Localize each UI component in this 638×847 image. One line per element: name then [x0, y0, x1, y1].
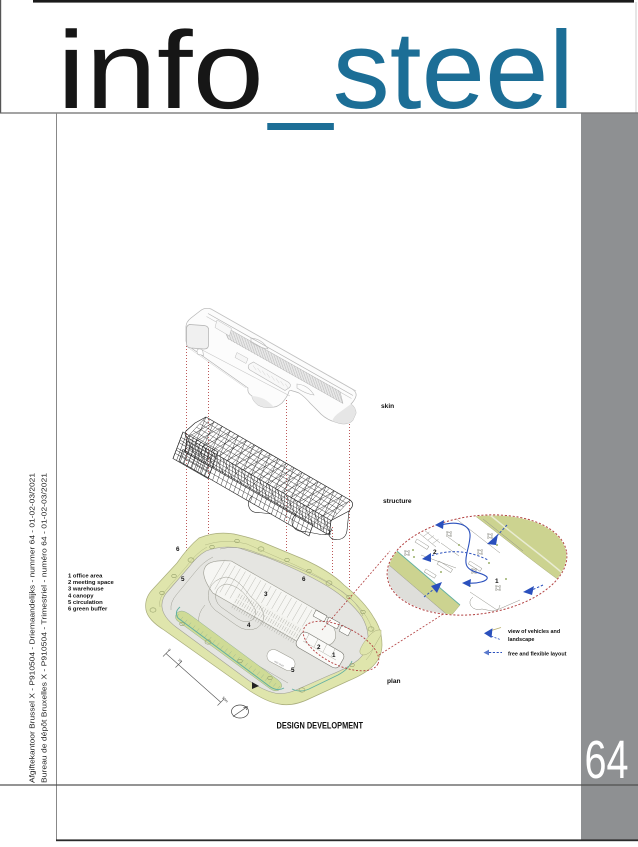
svg-text:1 office area: 1 office area — [68, 574, 103, 580]
svg-text:2: 2 — [317, 644, 321, 651]
svg-text:plan: plan — [387, 678, 401, 685]
svg-text:6 green buffer: 6 green buffer — [68, 607, 108, 613]
svg-text:2 meeting space: 2 meeting space — [68, 580, 115, 586]
svg-text:6: 6 — [302, 576, 306, 583]
svg-text:5 circulation: 5 circulation — [68, 600, 103, 606]
svg-text:4: 4 — [247, 622, 251, 629]
svg-text:view of vehicles and: view of vehicles and — [508, 629, 560, 635]
svg-text:1: 1 — [495, 578, 499, 585]
svg-text:5: 5 — [291, 667, 295, 674]
svg-text:64: 64 — [585, 731, 629, 790]
svg-text:1: 1 — [332, 652, 336, 659]
svg-text:free and flexible layout: free and flexible layout — [508, 652, 567, 658]
svg-text:3 warehouse: 3 warehouse — [68, 587, 104, 593]
svg-text:landscape: landscape — [508, 637, 534, 643]
svg-text:Afgiftekantoor Brussel X - P91: Afgiftekantoor Brussel X - P910504 - Dri… — [30, 473, 37, 783]
svg-text:4 canopy: 4 canopy — [68, 593, 94, 599]
svg-text:Bureau de dépôt Bruxelles X -: Bureau de dépôt Bruxelles X - P910504 - … — [42, 473, 49, 783]
svg-text:structure: structure — [383, 498, 412, 505]
svg-text:5: 5 — [181, 576, 185, 583]
svg-text:skin: skin — [381, 403, 394, 410]
svg-text:6: 6 — [176, 546, 180, 553]
svg-text:3: 3 — [264, 591, 268, 598]
svg-text:DESIGN DEVELOPMENT: DESIGN DEVELOPMENT — [277, 721, 364, 731]
